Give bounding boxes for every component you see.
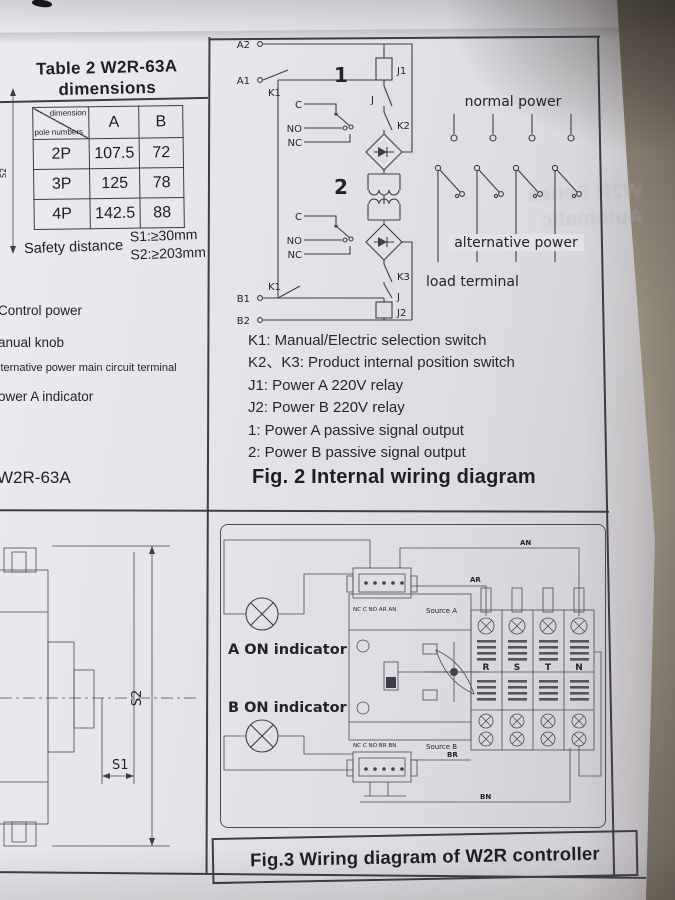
fig2-schematic: A2 J1 J K2 K3 J A1 K1 1 C NO NC 2 C NO N… [216, 28, 602, 328]
legend-line: K1: Manual/Electric selection switch [248, 330, 515, 352]
fig2-caption: Fig. 2 Internal wiring diagram [252, 466, 597, 489]
table2-title-block: Table 2 W2R-63A dimensions [26, 56, 189, 101]
normal-power-switches [451, 114, 574, 141]
table-row: 3P 125 78 [34, 167, 184, 199]
coil-1 [369, 190, 399, 195]
legend-line: 2: Power B passive signal output [248, 442, 515, 464]
left-edge-dimension: S2 [0, 82, 26, 262]
safety-values: S1:≥30mm S2:≥203mm [130, 225, 207, 264]
legend-line: 1: Power A passive signal output [248, 420, 515, 442]
pole-s-label: S [514, 663, 520, 673]
s2-dim-label: S2 [130, 690, 145, 707]
header-col-b: B [139, 105, 183, 138]
switch-k1-top-label: K1 [268, 88, 281, 99]
device-body [0, 570, 48, 824]
header-col-a: A [89, 106, 139, 139]
safety-distance: Safety distance S1:≥30mm S2:≥203mm [23, 225, 206, 267]
relay-j1-label: J1 [396, 66, 406, 77]
dimensions-table: dimension pole numbers A B 2P 107.5 72 3… [32, 105, 185, 230]
cell-pole: 3P [34, 169, 90, 200]
header-dimension: dimension [50, 108, 87, 118]
strip-b-pins-label: NC C NO BR BN [353, 743, 396, 749]
signal-1-label: 1 [334, 63, 348, 87]
callout-control-power: Control power [0, 303, 82, 318]
source-b-label: Source B [426, 743, 457, 751]
cell-a: 142.5 [90, 198, 140, 229]
cell-a: 107.5 [89, 138, 139, 169]
b-on-indicator-label: B ON indicator [228, 700, 348, 716]
load-terminal-label: load terminal [426, 274, 519, 290]
wire-ar-label: AR [470, 576, 481, 584]
callout-power-a-indicator: ower A indicator [0, 389, 93, 404]
wire-br-label: BR [447, 751, 458, 759]
switch-k3-label: K3 [397, 272, 410, 283]
cell-pole: 4P [34, 199, 90, 230]
wire-an-label: AN [520, 539, 531, 547]
legend-line: J1: Power A 220V relay [248, 375, 515, 397]
g1-c: C [295, 100, 302, 111]
fig2-legend: K1: Manual/Electric selection switch K2、… [248, 330, 515, 464]
table-header-diagonal: dimension pole numbers [33, 107, 89, 140]
lamp-a-on [246, 598, 278, 630]
contact-j-top-label: J [370, 95, 374, 106]
source-a-label: Source A [426, 607, 457, 615]
switch-k1-bot-label: K1 [268, 282, 281, 293]
table-row: 4P 142.5 88 [34, 197, 184, 229]
relay-j2-label: J2 [396, 308, 406, 319]
terminal-strip-b [347, 752, 417, 796]
terminal-a2-label: A2 [237, 40, 250, 51]
terminal-a1-label: A1 [237, 76, 250, 87]
a-on-indicator-label: A ON indicator [228, 642, 348, 658]
fig3-diagram: A ON indicator B ON indicator NC C NO AR… [220, 524, 604, 826]
alternative-power-label: alternative power [454, 235, 578, 251]
table2-title: Table 2 W2R-63A [26, 56, 188, 80]
g2-nc: NC [288, 250, 302, 261]
cell-b: 88 [140, 197, 184, 228]
legend-line: J2: Power B 220V relay [248, 397, 515, 419]
fig3-caption-box: Fig.3 Wiring diagram of W2R controller [212, 830, 639, 884]
pole-n-label: N [575, 663, 583, 673]
safety-s2: S2:≥203mm [130, 243, 206, 264]
strip-a-pins-label: NC C NO AR AN [353, 607, 396, 613]
model-label: W2R-63A [0, 468, 71, 488]
s1-dim-label: S1 [112, 758, 129, 773]
top-screw-terminals [478, 618, 587, 634]
callout-alt-power-terminal: lternative power main circuit terminal [0, 362, 177, 374]
relay-j2-coil [376, 302, 392, 318]
terminal-b1-label: B1 [237, 294, 250, 305]
relay-j1-coil [376, 58, 392, 80]
legend-line: K2、K3: Product internal position switch [248, 352, 515, 374]
table2-subtitle: dimensions [26, 77, 188, 101]
cell-b: 78 [140, 167, 184, 198]
callout-manual-knob: anual knob [0, 335, 64, 350]
dim-label: S2 [0, 168, 8, 178]
g2-no: NO [287, 236, 302, 247]
fig3-caption: Fig.3 Wiring diagram of W2R controller [250, 843, 600, 872]
table-row: 2P 107.5 72 [33, 137, 183, 169]
terminal-b2-label: B2 [237, 316, 250, 327]
switch-k2-label: K2 [397, 121, 410, 132]
signal-2-label: 2 [334, 175, 348, 199]
pole-r-label: R [483, 663, 490, 673]
lamp-b-on [246, 720, 278, 752]
dimension-drawing: S2 S1 [0, 522, 210, 867]
cell-a: 125 [90, 168, 140, 199]
pole-t-label: T [545, 663, 552, 673]
g1-no: NO [287, 124, 302, 135]
g1-nc: NC [288, 138, 302, 149]
contact-j-bot-label: J [396, 292, 400, 303]
terminal-strip-a [347, 568, 417, 598]
wire-bn-label: BN [480, 793, 491, 801]
safety-label: Safety distance [24, 238, 124, 257]
header-pole-numbers: pole numbers [34, 127, 83, 137]
controller-panel [349, 594, 471, 740]
bottom-screw-terminals [479, 714, 586, 746]
cell-b: 72 [139, 137, 183, 168]
g2-c: C [295, 212, 302, 223]
cell-pole: 2P [33, 139, 89, 170]
normal-power-label: normal power [465, 94, 562, 110]
